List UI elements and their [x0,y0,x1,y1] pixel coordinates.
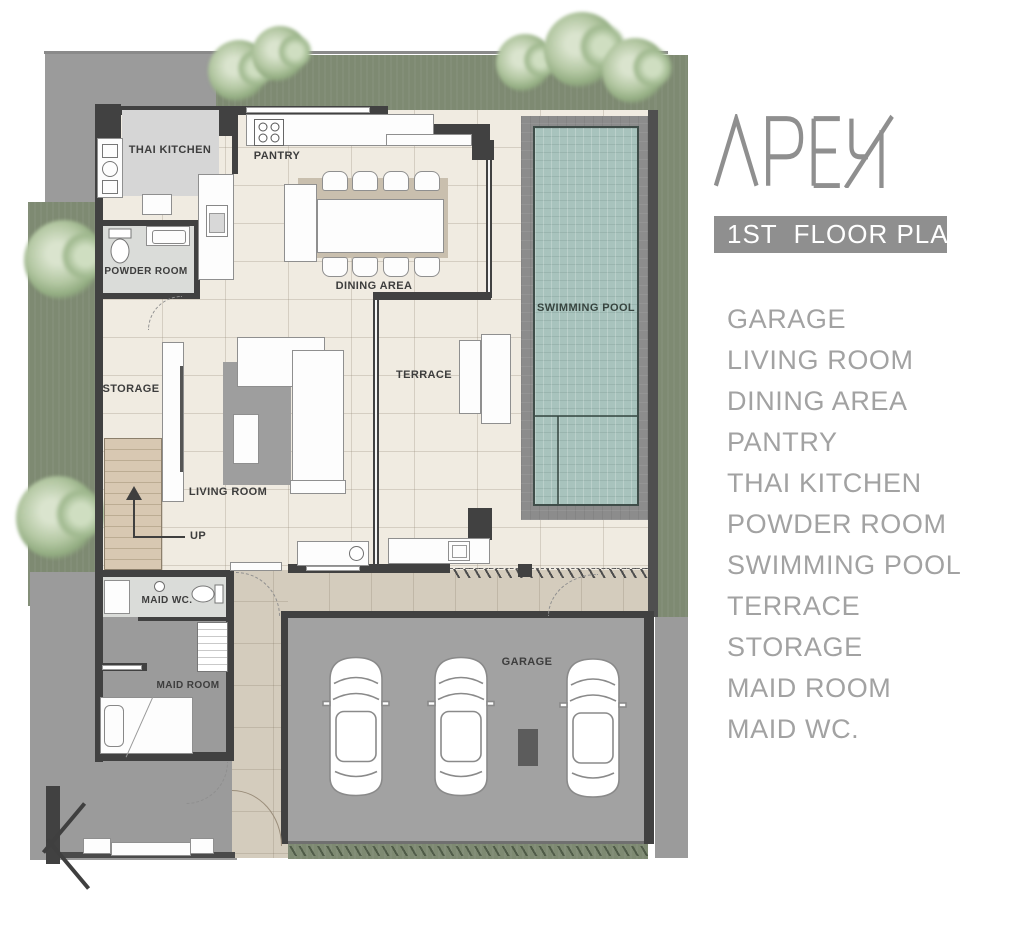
kitchen-sink-unit [198,174,234,280]
stove-icon [254,119,284,146]
pool-step-line-v [557,416,559,504]
wall-post-dining [484,140,494,160]
fence-post [518,564,532,577]
dining-chair [322,257,348,277]
legend-item-terrace: TERRACE [727,586,961,627]
legend-item-dining-area: DINING AREA [727,381,961,422]
kitchen-counter [142,194,172,215]
label-thai-kitchen: THAI KITCHEN [129,144,211,156]
wall-powder-bottom [95,293,199,299]
up-path-h [133,536,185,538]
maid-notch-yard [103,621,141,665]
dining-chair [383,257,409,277]
wall-kitchen-divider [232,110,238,174]
wall-maid-top [95,570,234,577]
legend-item-living-room: LIVING ROOM [727,340,961,381]
legend-item-thai-kitchen: THAI KITCHEN [727,463,961,504]
label-swimming-pool: SWIMMING POOL [537,302,635,314]
decor-circle [349,546,364,561]
entry-step [190,838,214,854]
drain-icon [154,581,165,592]
legend-item-storage: STORAGE [727,627,961,668]
label-maid-wc: MAID WC. [142,595,193,606]
wall-garage-right [644,611,654,844]
dining-sideboard [284,184,317,262]
bed [100,697,193,754]
dining-chair [352,171,378,191]
dining-chair [414,171,440,191]
label-maid-room: MAID ROOM [156,680,219,691]
fence-front [450,568,650,578]
dining-chair [322,171,348,191]
shower-tray [104,580,130,614]
label-dining-area: DINING AREA [336,280,413,292]
dining-chair [414,257,440,277]
tree-icon [16,476,100,560]
up-arrow-icon [126,486,142,500]
paving-bottom-right [655,617,688,858]
glass-wall-living [373,300,379,568]
coffee-table [233,414,259,464]
legend-item-maid-room: MAID ROOM [727,668,961,709]
outdoor-sink-icon [448,541,470,561]
sink-icon [146,226,190,246]
label-terrace: TERRACE [396,369,452,381]
wardrobe [197,622,228,672]
floor-plan-badge: 1ST FLOOR PLAN [714,216,947,253]
label-garage: GARAGE [502,656,553,668]
window-south [306,566,360,571]
tree-icon [252,26,308,82]
paving-left-strip [45,54,97,206]
label-up: UP [190,530,206,542]
tv-icon [180,366,183,472]
toilet-icon [107,228,133,266]
wall-site-right [648,110,658,617]
label-powder-room: POWDER ROOM [104,266,187,277]
sofa-main [292,350,344,486]
dining-chair [383,171,409,191]
entry-step [83,838,111,854]
outdoor-counter [388,538,490,564]
dining-chair [352,257,378,277]
column-terrace [468,508,492,540]
dining-table [317,199,444,253]
wall-garage-left [281,611,288,844]
grass-right [655,55,688,617]
label-storage: STORAGE [103,383,160,395]
pool-step-line-h [535,415,637,417]
legend-item-powder-room: POWDER ROOM [727,504,961,545]
legend-item-garage: GARAGE [727,299,961,340]
glass-wall-dining [486,158,492,298]
lounger [459,340,481,414]
wall-garage-top [281,611,654,618]
sofa-arm [290,480,346,494]
front-door [230,562,282,571]
garage-column [518,729,538,766]
label-pantry: PANTRY [254,150,300,162]
floor-plan-page: THAI KITCHEN PANTRY POWDER ROOM DINING A… [0,0,1024,926]
lounger [481,334,511,424]
room-legend: GARAGE LIVING ROOM DINING AREA PANTRY TH… [727,299,961,750]
tree-icon [602,38,668,104]
kitchen-appliance-panel [97,138,123,198]
up-path-v [133,500,135,538]
apex-logo [712,114,896,188]
entry-step [111,842,191,856]
grass-bottom-hatch [288,846,648,856]
window-north [246,107,370,113]
car-icon [427,648,495,803]
wall-dining-terrace [373,292,491,300]
legend-item-pantry: PANTRY [727,422,961,463]
toilet-icon [190,584,224,604]
pool-water [533,126,639,506]
label-living-room: LIVING ROOM [189,486,267,498]
car-icon [559,651,627,803]
legend-item-swimming-pool: SWIMMING POOL [727,545,961,586]
car-icon [322,648,390,803]
tree-icon [24,220,104,300]
pantry-counter-b [386,134,472,146]
legend-item-maid-wc: MAID WC. [727,709,961,750]
garage-threshold [288,841,644,844]
window-maid-niche [102,665,142,670]
